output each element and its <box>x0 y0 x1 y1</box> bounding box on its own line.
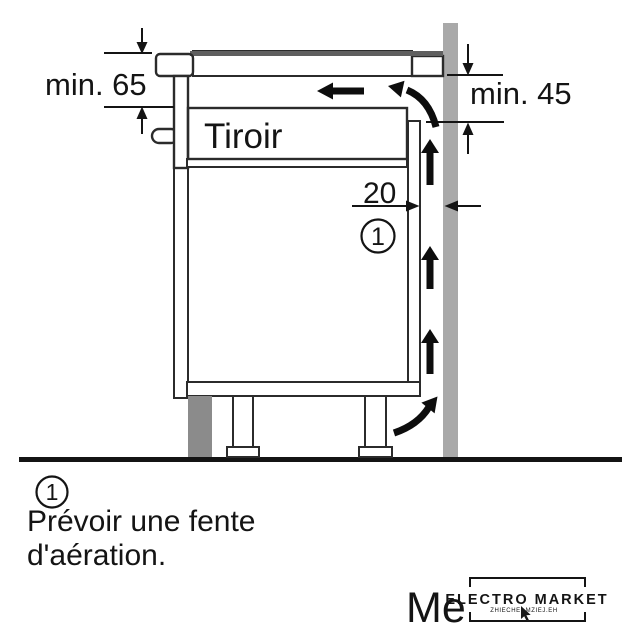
airflow-arrow-up-2-icon <box>421 246 439 289</box>
airflow-arrow-up-1-icon <box>421 139 439 185</box>
callout-1: 1 <box>362 220 395 253</box>
back-vent-panel <box>408 121 420 382</box>
bottom-shelf <box>187 382 420 396</box>
watermark: Me ELECTRO MARKET ZHIECHEI-MZIEJ.EH <box>406 578 609 632</box>
dim-min65-up-arrowhead-icon <box>137 107 148 120</box>
cooktop-glass-top <box>190 51 443 56</box>
leg-rear-foot <box>359 447 392 457</box>
cooktop-right-trim <box>412 56 443 76</box>
airflow-arrow-up-3-icon <box>421 329 439 374</box>
side-panel <box>174 76 188 398</box>
leg-rear <box>359 396 392 457</box>
wall <box>443 23 458 457</box>
footnote: 1 Prévoir une fente d'aération. <box>27 477 255 573</box>
installation-diagram: Tiroir min. 65 min. 45 20 <box>0 0 643 640</box>
dim-min45-down-arrowhead-icon <box>463 63 474 76</box>
cabinet: Tiroir <box>152 76 420 457</box>
dim-min65-label: min. 65 <box>45 67 147 102</box>
plinth <box>188 396 212 457</box>
cooktop <box>156 51 443 76</box>
airflow-arrow-curved-bottom-icon <box>394 397 438 434</box>
leg-front <box>227 396 259 457</box>
leg-front-stem <box>233 396 253 447</box>
dim-min45-label: min. 45 <box>470 76 572 111</box>
note-line2: d'aération. <box>27 539 166 572</box>
cooktop-left-trim <box>156 54 193 76</box>
floor-line <box>19 457 622 462</box>
callout-1-number: 1 <box>371 223 385 251</box>
note-line1: Prévoir une fente <box>27 505 255 538</box>
drawer-label: Tiroir <box>204 117 283 156</box>
dimension-min65: min. 65 <box>45 28 174 134</box>
logo-title: ELECTRO MARKET <box>445 592 608 608</box>
note-number: 1 <box>46 479 59 505</box>
logo-frame-top <box>470 578 585 587</box>
leg-rear-stem <box>365 396 386 447</box>
dim-min45-up-arrowhead-icon <box>463 123 474 136</box>
airflow-arrow-left-icon <box>317 83 364 100</box>
leg-front-foot <box>227 447 259 457</box>
